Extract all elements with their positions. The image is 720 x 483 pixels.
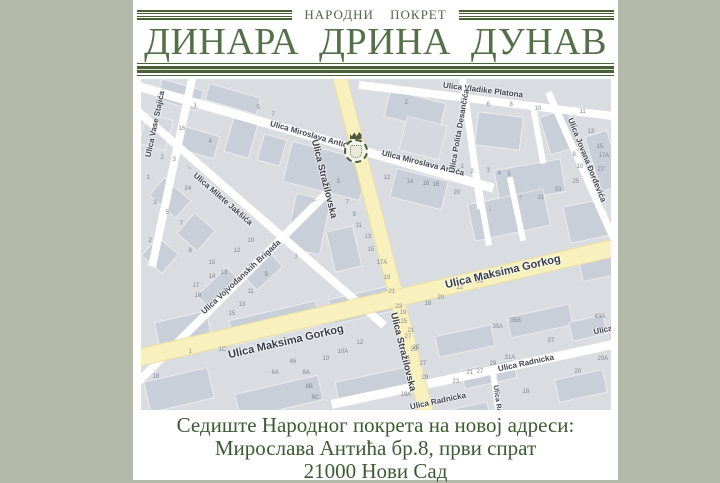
masthead-title: ДИНАРА ДРИНА ДУНАВ	[133, 22, 618, 62]
house-number: 10A	[338, 349, 349, 355]
house-number: 8	[510, 102, 513, 108]
house-number: 24	[185, 186, 192, 192]
house-number: 17	[193, 283, 200, 289]
house-number: 8C	[312, 395, 320, 401]
house-number: 13	[239, 302, 246, 308]
house-number: 15	[597, 144, 604, 150]
house-number: 1	[189, 349, 192, 355]
house-number: 3	[154, 200, 157, 206]
house-number: 3	[173, 157, 176, 163]
house-number: 19A	[401, 392, 412, 398]
house-number: 18	[433, 182, 440, 188]
house-number: 23	[453, 379, 460, 385]
house-number: 1C	[219, 347, 227, 353]
crest-wreath-icon	[344, 139, 368, 163]
house-number: 7	[272, 112, 275, 118]
house-number: 8B	[306, 384, 313, 390]
street	[529, 104, 545, 164]
house-number: 7	[295, 255, 298, 261]
house-number: 21	[467, 370, 474, 376]
decorative-rule-left	[137, 10, 292, 20]
house-number: 16	[423, 181, 430, 187]
house-number: 35A	[493, 324, 504, 330]
building	[224, 118, 256, 157]
house-number: 27	[420, 361, 427, 367]
house-number: 10	[248, 238, 255, 244]
house-number: 33	[555, 187, 562, 193]
house-number: 16	[179, 126, 186, 132]
address-line-1: Седиште Народног покрета на новој адреси…	[133, 414, 618, 437]
map-image: Ulica Vase StajićaUlica Milete JakšićaUl…	[141, 79, 611, 410]
house-number: 15	[229, 311, 236, 317]
house-number: 14	[407, 179, 414, 185]
house-number: 12	[234, 248, 241, 254]
house-number: 3	[487, 168, 490, 174]
crest-marker	[342, 132, 370, 166]
house-number: 20	[454, 190, 461, 196]
street-label: Ulica Ra	[491, 385, 502, 410]
house-number: 18	[523, 389, 530, 395]
house-number: 21	[408, 328, 415, 334]
one-way-arrow-icon: →	[514, 193, 525, 203]
one-way-arrow-icon: →	[486, 203, 497, 213]
house-number: 25	[413, 345, 420, 351]
masthead: НАРОДНИ ПОКРЕТ ДИНАРА ДРИНА ДУНАВ	[133, 0, 618, 76]
building	[235, 376, 322, 410]
house-number: 5	[508, 172, 511, 178]
house-number: 46	[290, 359, 297, 365]
house-number: 16	[195, 293, 202, 299]
house-number: 31	[538, 195, 545, 201]
house-number: 8	[189, 248, 192, 254]
house-number: 13	[365, 234, 372, 240]
house-number: 11	[248, 289, 254, 295]
building	[257, 134, 285, 165]
house-number: 27	[477, 369, 484, 375]
house-number: 20	[438, 295, 445, 301]
house-number: 17A	[599, 153, 610, 159]
page-background: { "colors":{"page_bg":"#b3baa7","accent_…	[0, 0, 720, 480]
house-number: 10	[535, 106, 542, 112]
footer-address: Седиште Народног покрета на новој адреси…	[133, 414, 618, 483]
house-number: 9	[265, 272, 268, 278]
content-column: НАРОДНИ ПОКРЕТ ДИНАРА ДРИНА ДУНАВ Ulica …	[133, 0, 618, 480]
house-number: 5	[257, 105, 260, 111]
house-number: 20A	[598, 356, 609, 362]
house-number: 8A	[303, 370, 310, 376]
house-number: 20	[575, 369, 582, 375]
building	[326, 227, 360, 272]
decorative-rule-right	[459, 10, 614, 20]
house-number: 29	[490, 361, 497, 367]
house-number: 2	[471, 169, 474, 175]
house-number: 13	[221, 270, 228, 276]
house-number: 1	[147, 175, 150, 181]
house-number: 15	[209, 260, 216, 266]
house-number: 17A	[377, 260, 388, 266]
house-number: 15	[368, 247, 375, 253]
house-number: 2	[149, 238, 152, 244]
house-number: 14	[209, 274, 216, 280]
building	[177, 214, 214, 251]
house-number: 2	[405, 100, 408, 106]
house-number: 4	[209, 139, 212, 145]
masthead-top-row: НАРОДНИ ПОКРЕТ	[133, 0, 618, 22]
house-number: 18	[153, 374, 160, 380]
house-number: 19	[400, 310, 407, 316]
house-number: 11	[580, 109, 586, 115]
crown-icon	[350, 132, 362, 139]
house-number: 7	[346, 200, 349, 206]
house-number: 4	[498, 171, 501, 177]
house-number: 8	[573, 152, 576, 158]
house-number: 18	[425, 301, 432, 307]
house-number: 1	[194, 103, 197, 109]
house-number: 43A	[595, 314, 606, 320]
house-number: 2	[161, 155, 164, 161]
address-line-2: Мирослава Антића бр.8, први спрат	[133, 437, 618, 460]
house-number: 25	[573, 179, 580, 185]
house-number: 5	[166, 210, 169, 216]
house-number: 12	[384, 175, 391, 181]
house-number: 37	[548, 338, 555, 344]
building	[435, 325, 494, 356]
house-number: 7	[180, 221, 183, 227]
house-number: 29	[422, 375, 429, 381]
house-number: 13	[588, 129, 595, 135]
house-number: 19	[384, 275, 391, 281]
house-number: 12	[357, 340, 364, 346]
house-number: 27	[598, 167, 605, 173]
house-number: 11	[356, 223, 362, 229]
house-number: 10	[323, 356, 330, 362]
house-number: 6	[487, 102, 490, 108]
house-number: 10	[577, 164, 584, 170]
building	[475, 112, 523, 149]
house-number: 35B	[511, 318, 522, 324]
house-number: 9	[353, 212, 356, 218]
decorative-band	[137, 63, 614, 76]
crest-shield-icon	[350, 145, 362, 158]
house-number: 6A	[272, 370, 279, 376]
house-number: 21	[389, 289, 396, 295]
house-number: 3	[337, 179, 340, 185]
